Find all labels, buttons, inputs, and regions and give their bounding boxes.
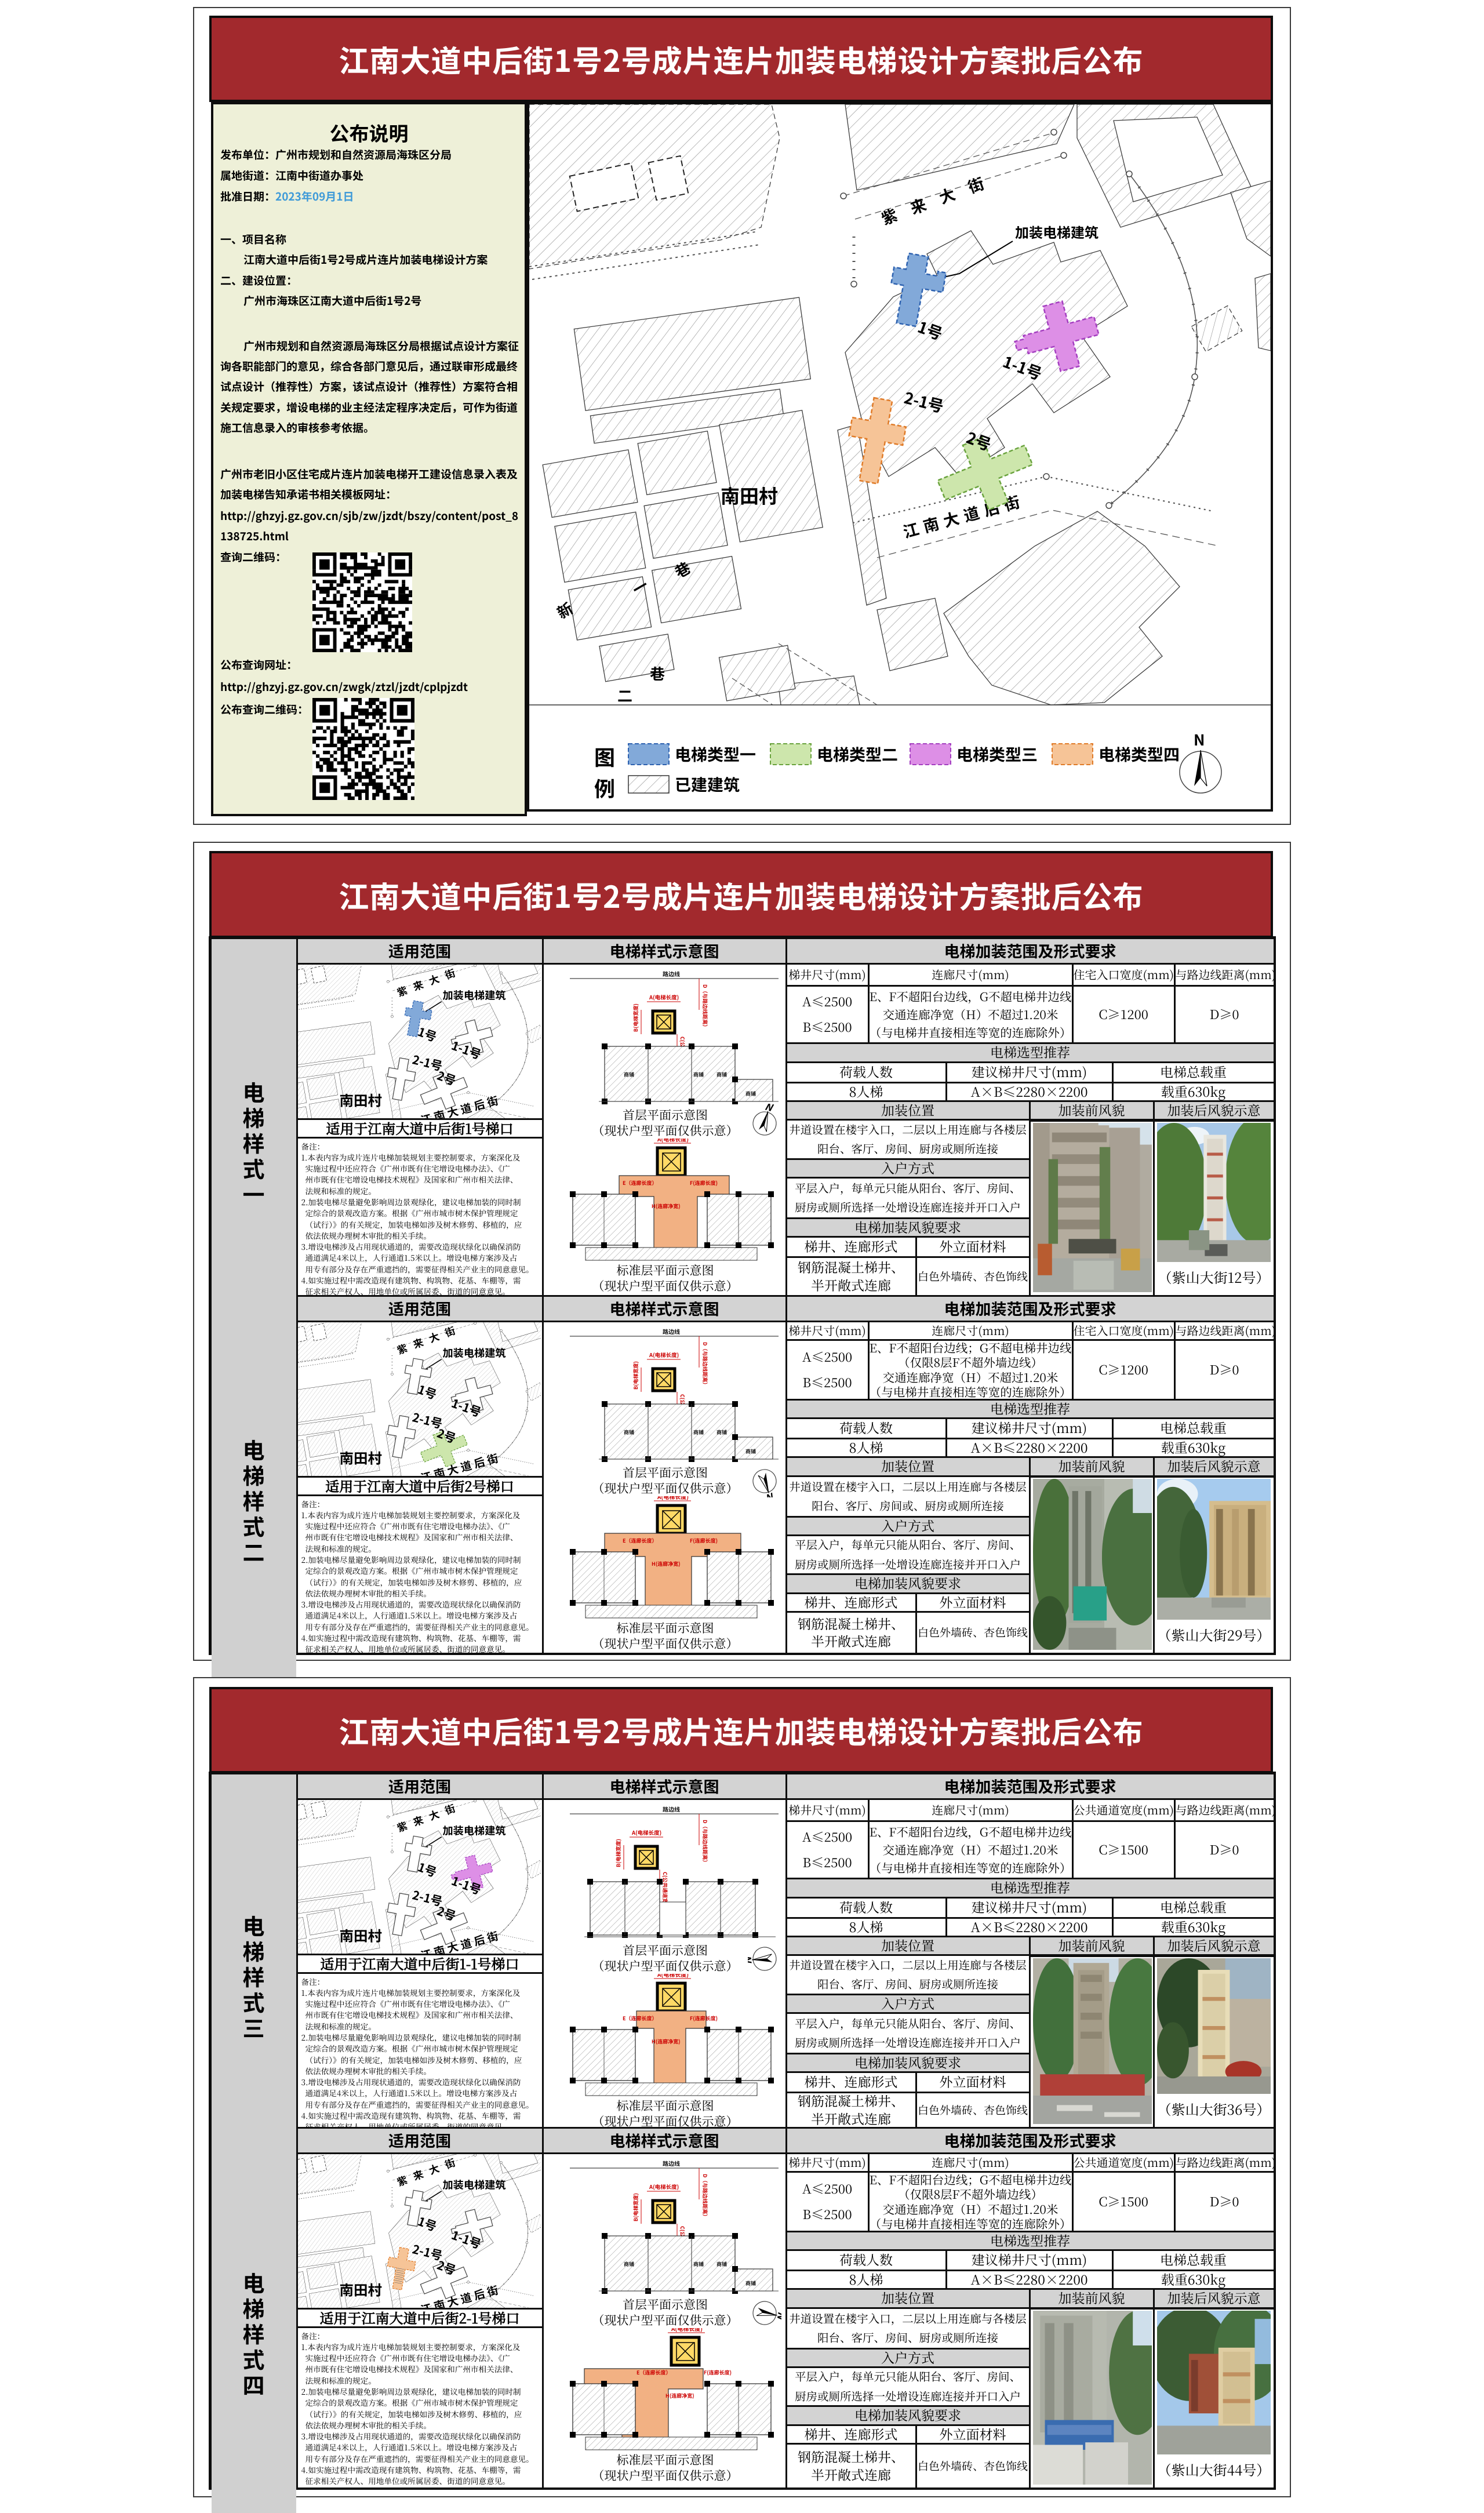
svg-text:商铺: 商铺 [693,1428,704,1436]
svg-text:E（连廊长度）: E（连廊长度） [636,2369,671,2376]
svg-text:F(连廊长度): F(连廊长度) [704,2369,732,2376]
svg-text:已建建筑: 已建建筑 [675,773,740,796]
svg-text:路边线: 路边线 [663,969,680,978]
svg-text:A(电梯长度): A(电梯长度) [671,2328,703,2333]
svg-text:A(电梯长度): A(电梯长度) [649,2183,679,2191]
svg-text:例: 例 [594,773,615,803]
svg-text:加装电梯建筑: 加装电梯建筑 [442,987,505,1002]
svg-text:B(电梯宽度): B(电梯宽度) [614,1839,622,1867]
svg-text:H(连廊净宽): H(连廊净宽) [652,1202,681,1210]
svg-text:B(电梯宽度): B(电梯宽度) [632,1003,639,1032]
svg-text:F(连廊长度): F(连廊长度) [690,1179,718,1187]
svg-text:A(电梯长度): A(电梯长度) [649,1351,679,1359]
svg-text:电梯类型四: 电梯类型四 [1099,743,1180,766]
svg-text:B(电梯宽度): B(电梯宽度) [632,1361,639,1390]
svg-text:F(连廊长度): F(连廊长度) [690,2014,718,2022]
svg-text:电梯类型三: 电梯类型三 [956,743,1038,766]
svg-text:商铺: 商铺 [693,2260,704,2268]
svg-text:D（与路边线距离）: D（与路边线距离） [701,2174,709,2219]
svg-text:路边线: 路边线 [663,1805,680,1813]
svg-text:南田村: 南田村 [339,1448,382,1468]
svg-text:A(电梯长度): A(电梯长度) [657,1496,689,1501]
svg-text:商铺: 商铺 [745,1090,756,1097]
svg-text:商铺: 商铺 [624,2260,634,2268]
svg-text:商铺: 商铺 [716,1071,727,1078]
svg-text:商铺: 商铺 [716,2260,727,2268]
svg-text:商铺: 商铺 [624,1428,634,1436]
svg-text:商铺: 商铺 [693,1071,704,1078]
svg-text:商铺: 商铺 [745,2279,756,2287]
svg-text:电梯类型一: 电梯类型一 [675,743,756,766]
svg-text:商铺: 商铺 [745,1448,756,1455]
svg-text:南田村: 南田村 [339,1090,382,1110]
svg-text:D（与路边线距离）: D（与路边线距离） [701,1820,709,1865]
svg-text:D（与路边线距离）: D（与路边线距离） [701,1342,709,1387]
svg-text:E（连廊长度）: E（连廊长度） [623,2014,657,2022]
svg-text:A(电梯长度): A(电梯长度) [649,993,679,1001]
svg-text:南田村: 南田村 [721,481,778,509]
svg-text:N: N [763,1104,775,1115]
svg-text:加装电梯建筑: 加装电梯建筑 [1015,221,1099,242]
svg-text:电梯类型二: 电梯类型二 [817,743,898,766]
svg-text:加装电梯建筑: 加装电梯建筑 [442,1345,505,1360]
svg-text:南田村: 南田村 [339,1925,382,1945]
svg-text:E（连廊长度）: E（连廊长度） [623,1537,657,1544]
svg-text:二: 二 [617,685,632,706]
svg-text:N: N [1194,729,1205,750]
svg-text:路边线: 路边线 [663,2159,680,2167]
svg-text:路边线: 路边线 [663,1327,680,1336]
svg-text:N: N [748,1955,755,1965]
svg-text:F(连廊长度): F(连廊长度) [690,1537,718,1544]
svg-text:H(连廊净宽): H(连廊净宽) [665,2392,694,2399]
svg-text:图: 图 [594,741,615,772]
svg-text:D（与路边线距离）: D（与路边线距离） [701,984,709,1030]
svg-text:商铺: 商铺 [716,1428,727,1436]
svg-text:H(连廊净宽): H(连廊净宽) [652,1560,681,1568]
svg-text:巷: 巷 [650,663,665,684]
svg-text:N: N [763,1489,777,1497]
svg-text:E（连廊长度）: E（连廊长度） [623,1179,657,1187]
svg-text:A(电梯长度): A(电梯长度) [631,1828,661,1836]
svg-text:H(连廊净宽): H(连廊净宽) [652,2038,681,2045]
svg-text:B(电梯宽度): B(电梯宽度) [632,2193,639,2221]
svg-text:南田村: 南田村 [339,2279,382,2300]
svg-text:A(电梯长度): A(电梯长度) [657,1139,689,1143]
svg-text:加装电梯建筑: 加装电梯建筑 [442,1823,505,1838]
svg-text:N: N [774,2311,781,2322]
svg-text:商铺: 商铺 [624,1071,634,1078]
svg-text:加装电梯建筑: 加装电梯建筑 [442,2177,505,2192]
svg-text:A(电梯长度): A(电梯长度) [657,1974,689,1979]
